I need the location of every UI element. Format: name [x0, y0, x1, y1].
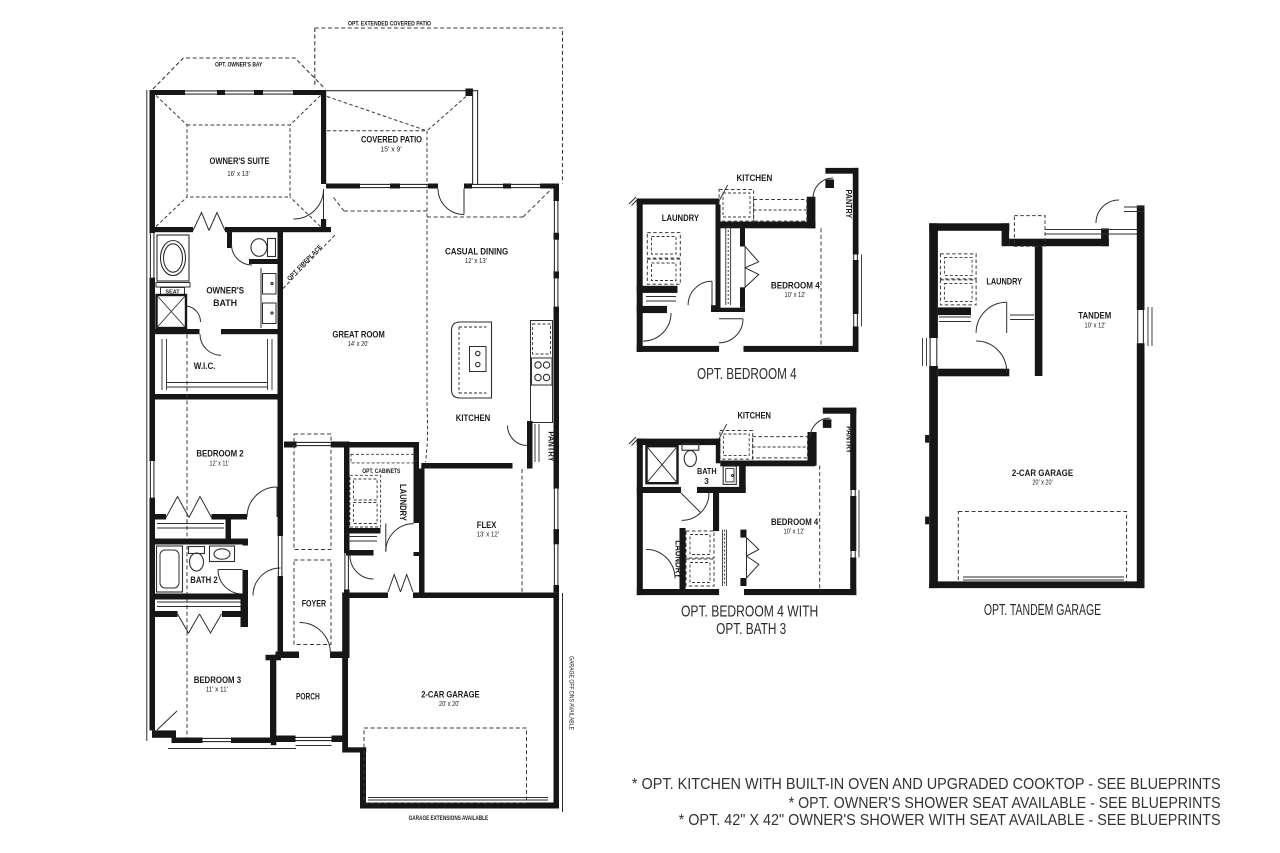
svg-text:BEDROOM 3: BEDROOM 3 [194, 675, 241, 685]
svg-text:BATH: BATH [213, 298, 237, 308]
svg-text:KITCHEN: KITCHEN [736, 173, 772, 183]
svg-text:LAUNDRY: LAUNDRY [662, 213, 699, 223]
svg-text:OPT. BEDROOM 4: OPT. BEDROOM 4 [697, 366, 797, 383]
svg-text:OPT. CABINETS: OPT. CABINETS [362, 468, 400, 475]
svg-text:10' x 12': 10' x 12' [785, 290, 806, 299]
svg-text:GREAT ROOM: GREAT ROOM [332, 330, 385, 340]
svg-text:16' x 13': 16' x 13' [227, 169, 250, 178]
svg-text:PANTRY: PANTRY [547, 431, 557, 462]
svg-text:* OPT. OWNER'S SHOWER SEAT AVA: * OPT. OWNER'S SHOWER SEAT AVAILABLE - S… [789, 795, 1221, 812]
svg-text:2-CAR GARAGE: 2-CAR GARAGE [421, 690, 479, 700]
svg-text:20' x 20': 20' x 20' [1032, 478, 1053, 487]
svg-text:GARAGE OFF DNS AVAILABLE: GARAGE OFF DNS AVAILABLE [568, 656, 574, 730]
svg-text:FOYER: FOYER [302, 599, 327, 609]
svg-text:20' x 20': 20' x 20' [439, 699, 460, 708]
svg-text:12' x 13': 12' x 13' [465, 256, 487, 265]
svg-text:OPT. EXTENDED COVERED PATIO: OPT. EXTENDED COVERED PATIO [348, 21, 431, 28]
svg-text:PANTRY: PANTRY [844, 190, 854, 219]
svg-text:BEDROOM 2: BEDROOM 2 [196, 448, 243, 458]
svg-text:OPT. BATH 3: OPT. BATH 3 [716, 621, 786, 638]
svg-text:* OPT. 42" X 42" OWNER'S SHOWE: * OPT. 42" X 42" OWNER'S SHOWER WITH SEA… [679, 812, 1221, 829]
svg-text:LAUNDRY: LAUNDRY [398, 484, 408, 521]
svg-text:OPT. TANDEM GARAGE: OPT. TANDEM GARAGE [984, 602, 1101, 619]
svg-text:COVERED PATIO: COVERED PATIO [361, 135, 422, 145]
svg-text:13' x 12': 13' x 12' [477, 530, 500, 539]
svg-text:11' x 11': 11' x 11' [206, 685, 229, 694]
svg-text:W.I.C.: W.I.C. [194, 361, 216, 371]
svg-text:GARAGE EXTENSIONS AVAILABLE: GARAGE EXTENSIONS AVAILABLE [409, 815, 489, 822]
svg-text:15' x 9': 15' x 9' [381, 145, 403, 154]
svg-text:BATH 2: BATH 2 [190, 575, 217, 585]
svg-text:PORCH: PORCH [296, 691, 320, 701]
svg-text:BATH: BATH [697, 466, 717, 476]
svg-text:3: 3 [704, 476, 709, 486]
svg-text:12' x 11': 12' x 11' [210, 459, 230, 468]
svg-text:* OPT. KITCHEN WITH BUILT-IN O: * OPT. KITCHEN WITH BUILT-IN OVEN AND UP… [632, 776, 1221, 793]
svg-text:10' x 12': 10' x 12' [784, 526, 805, 535]
svg-text:PANTRY: PANTRY [844, 426, 854, 454]
svg-text:KITCHEN: KITCHEN [737, 410, 771, 420]
svg-text:OPT. OWNER'S BAY: OPT. OWNER'S BAY [215, 62, 263, 69]
svg-text:TANDEM: TANDEM [1078, 311, 1111, 321]
svg-text:LAUNDRY: LAUNDRY [986, 277, 1022, 287]
svg-text:OPT. BEDROOM 4 WITH: OPT. BEDROOM 4 WITH [681, 604, 818, 621]
svg-text:OWNER'S SUITE: OWNER'S SUITE [210, 156, 270, 166]
svg-text:10' x 12': 10' x 12' [1085, 321, 1106, 330]
svg-text:KITCHEN: KITCHEN [456, 413, 491, 423]
svg-text:14' x 20': 14' x 20' [348, 339, 369, 348]
svg-text:OWNER'S: OWNER'S [206, 286, 244, 296]
